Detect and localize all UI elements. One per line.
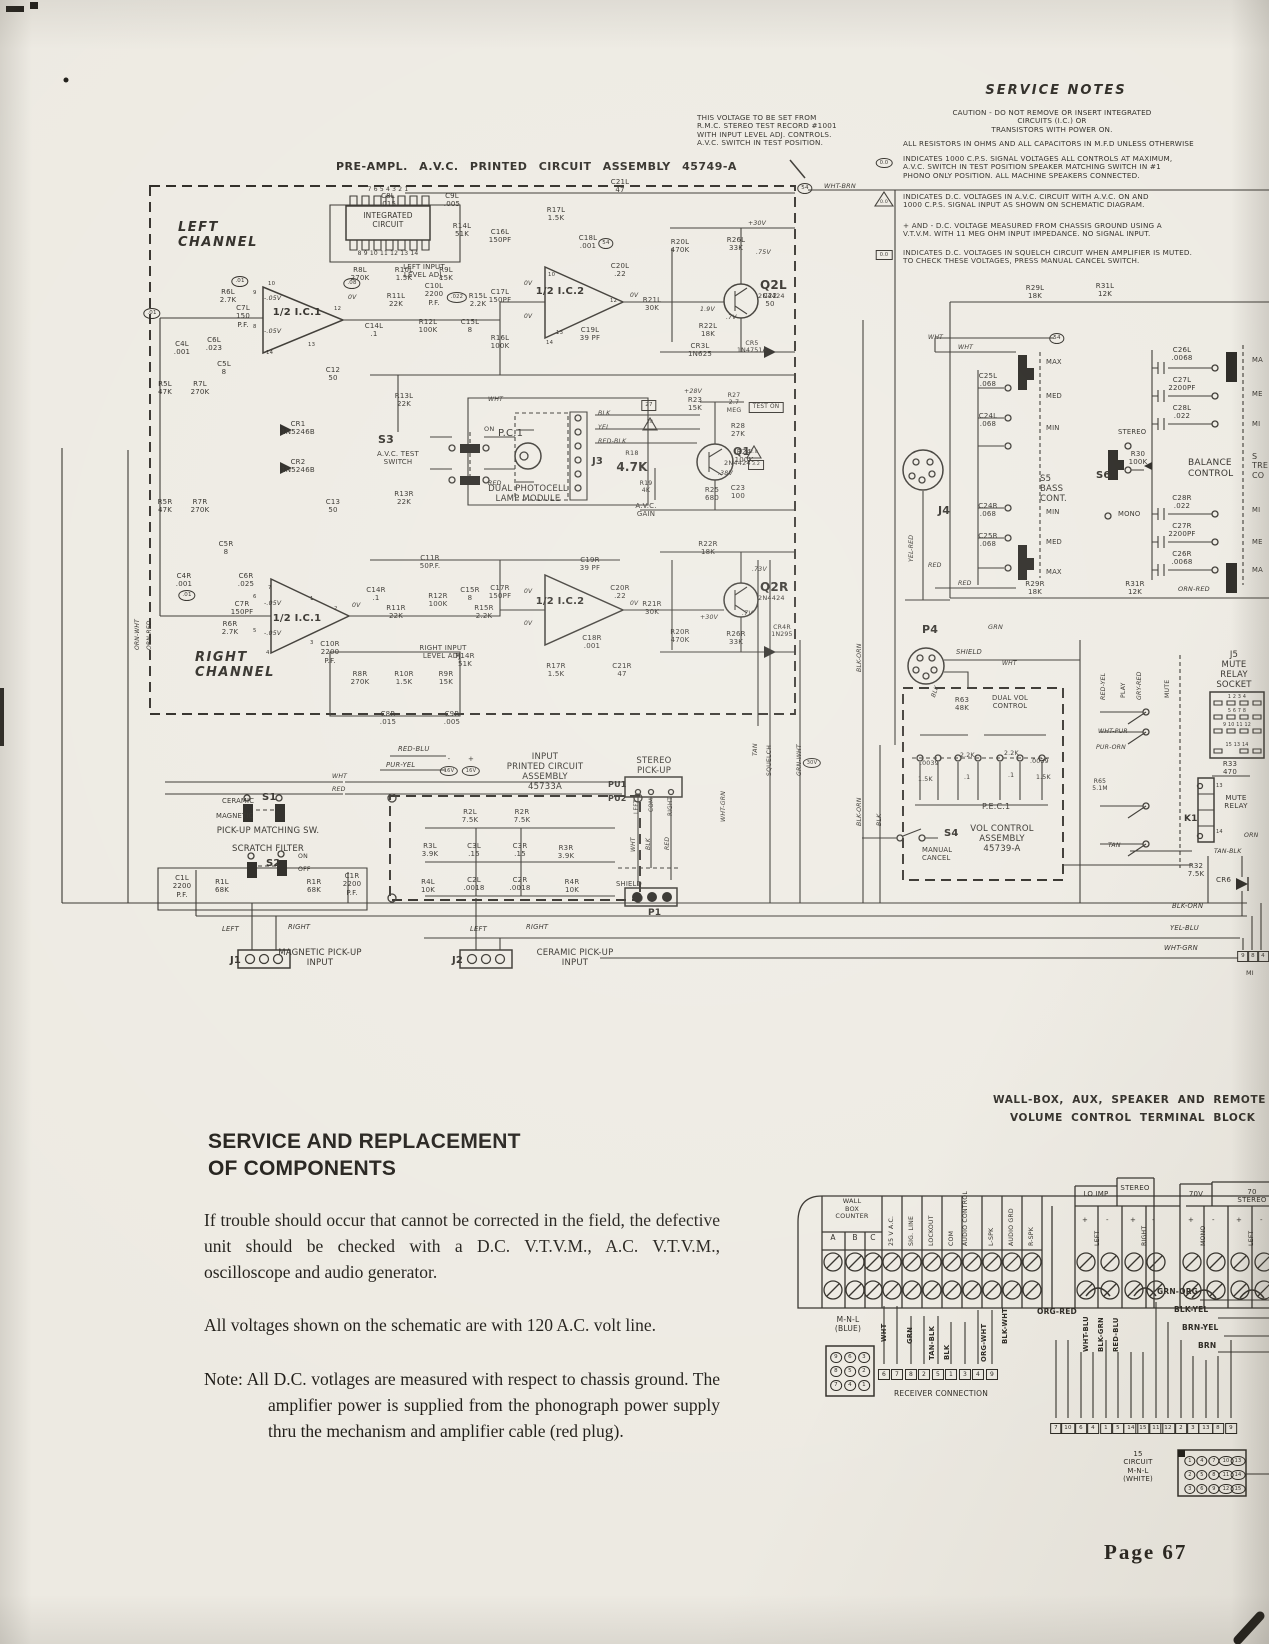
schematic-label: TAN [1108,842,1121,849]
schematic-label: 0V [348,294,357,301]
schematic-label: C [870,1234,875,1243]
schematic-label: SHIELD [956,648,982,656]
schematic-label: WHT [880,1324,888,1342]
schematic-label: R11R 22K [386,604,405,621]
schematic-label: C24R .068 [978,502,997,519]
schematic-label: COM [948,1231,955,1246]
schematic-label: R31R 12K [1125,580,1144,597]
schematic-label: C27L 2200PF [1168,376,1195,393]
schematic-label: MONO [1200,1225,1207,1246]
schematic-label: 15 13 14 [1226,743,1249,749]
schematic-label: -.05V [264,328,281,335]
schematic-label: WHT [928,334,943,341]
schematic-label: C4L .001 [174,340,190,357]
schematic-label: .0039 [1030,758,1049,765]
schematic-label: 4.7K [616,460,647,474]
schematic-label: .1 [964,774,970,781]
schematic-label: AUDIO CONTROL [962,1191,969,1246]
schematic-label: LEFT INPUT LEVEL ADJ. [403,263,445,280]
schematic-label: MED [1046,538,1062,546]
schematic-label: R15R 2.2K [474,604,493,621]
schematic-label: MAGNETIC [216,812,254,820]
schematic-label: J1 [230,955,241,967]
schematic-label: MUTE [1164,680,1171,698]
schematic-label: RECEIVER CONNECTION [894,1390,988,1399]
schematic-label: 1/2 I.C.2 [536,286,584,298]
schematic-label: STEREO [1120,1184,1149,1192]
schematic-label: MONO [1118,510,1140,518]
schematic-label: COM [649,798,656,812]
schematic-label: RIGHT [668,797,675,816]
schematic-label: RED [332,786,346,793]
schematic-label: C24L .068 [979,412,998,429]
schematic-label: S1 [262,792,277,804]
schematic-label: 4 [1196,1456,1207,1466]
schematic-label: R19 4K [640,480,653,495]
schematic-label: GRN-ORG [1157,1288,1198,1297]
schematic-label: PLAY [1120,682,1127,698]
schematic-label: 1/2 I.C.1 [273,307,321,319]
page-number: Page 67 [1104,1540,1187,1565]
schematic-label: ORG-RED [1037,1308,1077,1317]
schematic-label: BLK [876,814,883,826]
schematic-label: 9 10 11 12 [1223,723,1251,729]
article-heading: SERVICE AND REPLACEMENT OF COMPONENTS [208,1128,720,1183]
schematic-label: 12 [1160,1423,1175,1434]
schematic-label: R23 15K [688,396,702,413]
schematic-label: SQUELCH [766,745,773,776]
schematic-label: MUTE RELAY [1224,794,1247,811]
schematic-title: PRE-AMPL. A.V.C. PRINTED CIRCUIT ASSEMBL… [336,160,737,173]
schematic-label: RIGHT [1141,1226,1148,1246]
schematic-label: R3R 3.9K [558,844,575,861]
schematic-label: 5 [253,628,257,634]
schematic-label: C19L 39 PF [580,326,600,343]
schematic-label: C21L 47 [611,178,630,195]
schematic-label: WHT-GRN [1164,944,1198,952]
schematic-label: C6R .025 [238,572,254,589]
schematic-label: R7L 270K [191,380,210,397]
schematic-label: SCRATCH FILTER [232,844,304,854]
article-paragraph-2: All voltages shown on the schematic are … [204,1312,720,1338]
schematic-label: 5 [932,1369,944,1380]
schematic-label: - [1212,1216,1215,1224]
schematic-label: 0.0 [880,200,888,205]
schematic-label: 8 [830,1366,842,1377]
schematic-label: C6L .023 [206,336,222,353]
schematic-label: R2L 7.5K [462,808,479,825]
schematic-label: MIN [1046,424,1060,432]
schematic-label: R28 27K [731,422,745,439]
schematic-label: P4 [922,624,938,637]
schematic-label: 14 [546,340,553,346]
schematic-label: A [830,1234,835,1243]
schematic-label: PUR-ORN [1096,744,1126,751]
schematic-label: 2.8 [750,450,758,455]
schematic-label: RED [664,837,671,850]
schematic-label: C25L .068 [979,372,998,389]
schematic-label: 0V [524,620,532,627]
schematic-label: B [852,1234,857,1243]
schematic-label: YEL-RED [908,535,915,562]
schematic-label: R17R 1.5K [546,662,565,679]
schematic-label: C18R .001 [582,634,601,651]
schematic-label: GRN [906,1327,914,1344]
schematic-label: MIN [1046,508,1060,516]
schematic-label: 0V [524,313,532,320]
schematic-label: 5 [844,1366,856,1377]
schematic-label: .08 [343,278,360,289]
schematic-label: 1 [858,1380,870,1391]
schematic-label: 0V [630,292,638,299]
schematic-label: + [1082,1216,1088,1224]
schematic-label: GRN [988,624,1003,632]
schematic-label: BLK-GRN [1097,1317,1105,1352]
schematic-label: LO IMP [1084,1190,1109,1198]
schematic-label: MAX [1046,358,1062,366]
schematic-label: 6 [253,594,257,600]
schematic-label: MI [1252,420,1260,428]
schematic-label: 1 [945,1369,957,1380]
schematic-label: 2 [858,1366,870,1377]
schematic-label: 14 [1216,830,1223,836]
schematic-label: P.C.1 [498,428,523,440]
schematic-label: + [468,755,474,763]
schematic-label: MI [1252,506,1260,514]
schematic-label: R5R 47K [158,498,173,515]
schematic-label: 9 [830,1352,842,1363]
schematic-label: SIG. LINE [908,1216,915,1246]
schematic-label: R1L 68K [215,878,229,895]
schematic-label: + [1236,1216,1242,1224]
schematic-label: C26R .0068 [1171,550,1192,567]
schematic-label: -.05V [264,295,281,302]
schematic-label: P.E.C.1 [982,802,1010,811]
schematic-label: C25R .068 [978,532,997,549]
schematic-label: 2.2K [1004,750,1019,757]
schematic-label: C2L .0018 [463,876,484,893]
schematic-label: ORG-WHT [980,1324,988,1362]
schematic-label: .75V [756,249,771,256]
schematic-label: R11L 22K [387,292,405,309]
schematic-label: - [1260,1216,1263,1224]
schematic-label: R8R 270K [351,670,370,687]
schematic-label: 2.2K [960,752,975,759]
schematic-label: 0V [524,588,532,595]
schematic-label: J2 [452,955,463,967]
schematic-label: C8L .015 [380,192,396,209]
schematic-label: C2R .0018 [509,876,530,893]
schematic-label: THIS VOLTAGE TO BE SET FROM R.M.C. STERE… [697,114,837,148]
schematic-label: C7L 150 P.F. [236,304,250,329]
schematic-label: YEL-BLU [1170,924,1199,932]
schematic-label: 3.2 [748,460,764,470]
schematic-label: BRN [1198,1342,1216,1351]
schematic-label: CR5 1N4751A [737,340,767,355]
schematic-label: C16L 150PF [489,228,512,245]
schematic-label: - [448,755,451,763]
schematic-label: C21R 47 [612,662,631,679]
schematic-label: 54 [1049,333,1064,344]
schematic-label: 4 [266,650,270,656]
schematic-label: C27R 2200PF [1168,522,1195,539]
schematic-label: 0V [524,280,532,287]
schematic-label: 30V [803,758,821,768]
schematic-label: WHT-GRN [720,791,727,822]
schematic-label: 70 STEREO [1237,1188,1266,1205]
terminal-block-title-line2: VOLUME CONTROL TERMINAL BLOCK [1010,1112,1255,1124]
schematic-label: SHIELD [616,880,642,888]
schematic-label: RIGHT [526,923,548,931]
schematic-label: WHT-BRN [824,183,856,191]
schematic-label: R29R 18K [1025,580,1044,597]
schematic-label: LEFT [222,925,239,933]
schematic-label: 3 [858,1352,870,1363]
schematic-label: STEREO PICK-UP [636,756,671,776]
schematic-label: TAN-BLK [928,1326,936,1360]
schematic-label: 9 [986,1369,998,1380]
schematic-label: J5 MUTE RELAY SOCKET [1216,650,1251,690]
schematic-label: L-SPK [988,1228,995,1246]
schematic-label: S5 BASS CONT. [1040,474,1067,504]
schematic-label: 13 [556,330,563,336]
schematic-label: WHT [332,773,347,780]
schematic-label: +28V [684,388,702,395]
schematic-label: R15L 2.2K [469,292,487,309]
schematic-label: R20R 470K [670,628,689,645]
terminal-block-title-line1: WALL-BOX, AUX, SPEAKER AND REMOTE [993,1094,1266,1106]
schematic-label: R26L 33K [727,236,745,253]
schematic-label: .73V [752,566,767,573]
schematic-label: RED [488,480,502,487]
schematic-label: INDICATES D.C. VOLTAGES IN SQUELCH CIRCU… [903,249,1192,266]
schematic-label: 1.5K [1036,774,1051,781]
schematic-label: 7 6 5 4 3 2 1 [368,186,409,193]
schematic-label: C15R 8 [460,586,479,603]
schematic-label: R26R 33K [726,630,745,647]
schematic-label: 70V [1189,1190,1203,1198]
schematic-label: 10 [268,281,275,287]
schematic-label: GRY-RED [1136,671,1143,700]
schematic-label: MAGNETIC PICK-UP INPUT [278,948,362,968]
schematic-label: BLK-YEL [1174,1306,1208,1315]
schematic-label: 0.0 [876,250,893,260]
schematic-label: CR4R 1N295 [771,624,792,639]
schematic-label: R13R 22K [394,490,413,507]
schematic-label: MAX [1046,568,1062,576]
schematic-label: 3 [310,640,314,646]
schematic-label: LEFT [1248,1231,1255,1246]
schematic-label: 8 [1212,1423,1224,1434]
schematic-label: R12L 100K [419,318,438,335]
schematic-label: C20L .22 [611,262,630,279]
schematic-label: 7 [891,1369,903,1380]
schematic-label: - [1106,1216,1109,1224]
schematic-label: ON [298,853,308,860]
schematic-label: PUR-YEL [386,761,415,769]
schematic-label: CR1 1N5246B [281,420,315,437]
schematic-label: TAN-BLK [1214,848,1241,855]
schematic-label: RIGHT CHANNEL [195,650,275,681]
schematic-label: BLK-WHT [1001,1308,1009,1344]
schematic-label: R9R 15K [439,670,454,687]
schematic-label: RED-BLU [1112,1317,1120,1352]
schematic-label: BLK-ORN [1172,902,1203,910]
schematic-label: R-SPK [1028,1227,1035,1246]
schematic-label: 5 [1196,1470,1207,1480]
schematic-label: R65 5.1M [1092,778,1108,792]
schematic-label: C1R 2200 P.F. [343,872,362,897]
schematic-label: DUAL VOL CONTROL [992,694,1028,710]
schematic-label: RED [958,580,972,587]
schematic-label: 14 [1231,1470,1246,1480]
schematic-label: R21L 30K [643,296,661,313]
schematic-label: 1 [310,596,314,602]
service-article: SERVICE AND REPLACEMENT OF COMPONENTS If… [204,1128,720,1444]
schematic-label: R3L 3.9K [422,842,439,859]
schematic-label: CERAMIC PICK-UP INPUT [537,948,614,968]
schematic-label: MA [1252,566,1263,574]
schematic-label: BRN-YEL [1182,1324,1219,1333]
schematic-label: 13 [1231,1456,1246,1466]
schematic-label: 25 V A.C. [888,1216,895,1246]
schematic-label: .1 [1008,772,1014,779]
schematic-label: YEL [598,424,610,431]
schematic-label: BLK-ORN [856,643,863,672]
schematic-label: R13L 22K [395,392,413,409]
schematic-label: R29L 18K [1026,284,1044,301]
schematic-label: C19R 39 PF [580,556,600,573]
schematic-label: -.05V [264,630,281,637]
schematic-label: MA [1252,356,1263,364]
schematic-label: S3 [378,434,394,447]
schematic-label: 12 [610,298,617,304]
schematic-label: R18 [625,450,638,458]
schematic-label: 1 [1184,1456,1195,1466]
schematic-label: ORN-RED [146,620,153,650]
schematic-label: R22R 18K [698,540,717,557]
schematic-label: C20R .22 [610,584,629,601]
schematic-label: R21R 30K [642,600,661,617]
schematic-label: TEST ON [749,402,784,413]
schematic-label: 12 [334,306,341,312]
schematic-label: 9 [1225,1423,1237,1434]
schematic-label: -.05V [264,600,281,607]
schematic-label: P1 [648,908,661,919]
schematic-label: C10R 2200 P.F. [320,640,339,665]
schematic-label: LEFT [1094,1231,1101,1246]
schematic-label: R14L 51K [453,222,471,239]
schematic-label: INPUT PRINTED CIRCUIT ASSEMBLY 45733A [507,752,584,792]
schematic-label: R2R 7.5K [514,808,531,825]
schematic-label: LOCKOUT [928,1215,935,1246]
schematic-label: OFF [298,866,311,873]
schematic-label: R32 7.5K [1188,862,1205,879]
schematic-label: R27 2.7 MEG [727,392,742,414]
schematic-label: S2 [266,858,281,870]
schematic-label: BLK [930,685,941,699]
schematic-label: 1 [1100,1423,1112,1434]
schematic-label: R14R 51K [455,652,474,669]
schematic-label: LEFT [470,925,487,933]
schematic-label: .7V [742,610,753,617]
schematic-label: C17R 150PF [489,584,512,601]
schematic-label: 3 [1184,1484,1195,1494]
schematic-label: MANUAL CANCEL [922,846,952,862]
schematic-label: 13 [308,342,315,348]
schematic-label: 7 [830,1380,842,1391]
schematic-label: 6 [844,1352,856,1363]
schematic-label: 14 [266,350,273,356]
schematic-label: WHT [488,396,503,403]
schematic-label: INDICATES D.C. VOLTAGES IN A.V.C. CIRCUI… [903,193,1149,210]
schematic-label: INDICATES 1000 C.P.S. SIGNAL VOLTAGES AL… [903,155,1172,180]
schematic-label: 2N4424 [758,595,785,603]
schematic-label: 1/2 I.C.2 [536,596,584,608]
schematic-label: .0039 [920,760,939,767]
schematic-label: 9 [253,290,257,296]
schematic-label: 3 [1187,1423,1199,1434]
schematic-label: 54 [797,183,812,194]
schematic-label: 54 [598,238,613,249]
schematic-label: PU1 [608,780,627,789]
schematic-label: BLK [598,410,610,417]
schematic-label: GRN-WHT [796,744,803,776]
schematic-label: R4L 10K [421,878,435,895]
schematic-label: SERVICE NOTES [985,83,1126,98]
schematic-label: 27 [641,400,656,411]
schematic-label: C7R 150PF [231,600,254,617]
schematic-label: 3 [959,1369,971,1380]
schematic-label: Q2R [760,580,788,594]
schematic-label: .38V [718,470,733,477]
schematic-label: INTEGRATED CIRCUIT [363,212,413,230]
schematic-label: .7V [726,314,737,321]
schematic-label: PU2 [608,794,627,803]
schematic-label: C15L 8 [461,318,480,335]
schematic-label: R25 680 [705,486,719,503]
schematic-label: 8 [905,1369,917,1380]
schematic-label: C22 50 [763,292,777,309]
schematic-label: 13 [1216,784,1223,790]
schematic-label: CR6 [1216,876,1231,884]
schematic-label: C11R 50P.F. [420,554,441,571]
schematic-label: 2 [1175,1423,1187,1434]
schematic-label: S6 [1096,470,1111,482]
schematic-label: 5 6 7 8 [1228,709,1246,715]
article-note: Note: All D.C. votlages are measured wit… [204,1366,720,1445]
schematic-label: 28 [647,420,653,425]
schematic-label: 2 [1184,1470,1195,1480]
schematic-label: .01 [143,308,160,319]
schematic-label: R63 48K [955,696,969,713]
schematic-label: 15 CIRCUIT M-N-L (WHITE) [1123,1450,1153,1483]
schematic-label: .022 [447,292,467,303]
schematic-label: ME [1252,390,1263,398]
schematic-label: RED-BLU [398,745,430,753]
schematic-label: C5R 8 [219,540,234,557]
schematic-label: 0.0 [876,158,893,168]
schematic-label: - [1152,1216,1155,1224]
schematic-label: C26L .0068 [1171,346,1192,363]
schematic-label: MED [1046,392,1062,400]
schematic-label: R16L 100K [491,334,510,351]
schematic-label: C23 100 [731,484,745,501]
schematic-label: C12 50 [326,366,340,383]
schematic-label: MI [1246,970,1254,978]
schematic-label: 10 [548,272,555,278]
schematic-label: ORN-WHT [134,619,141,650]
